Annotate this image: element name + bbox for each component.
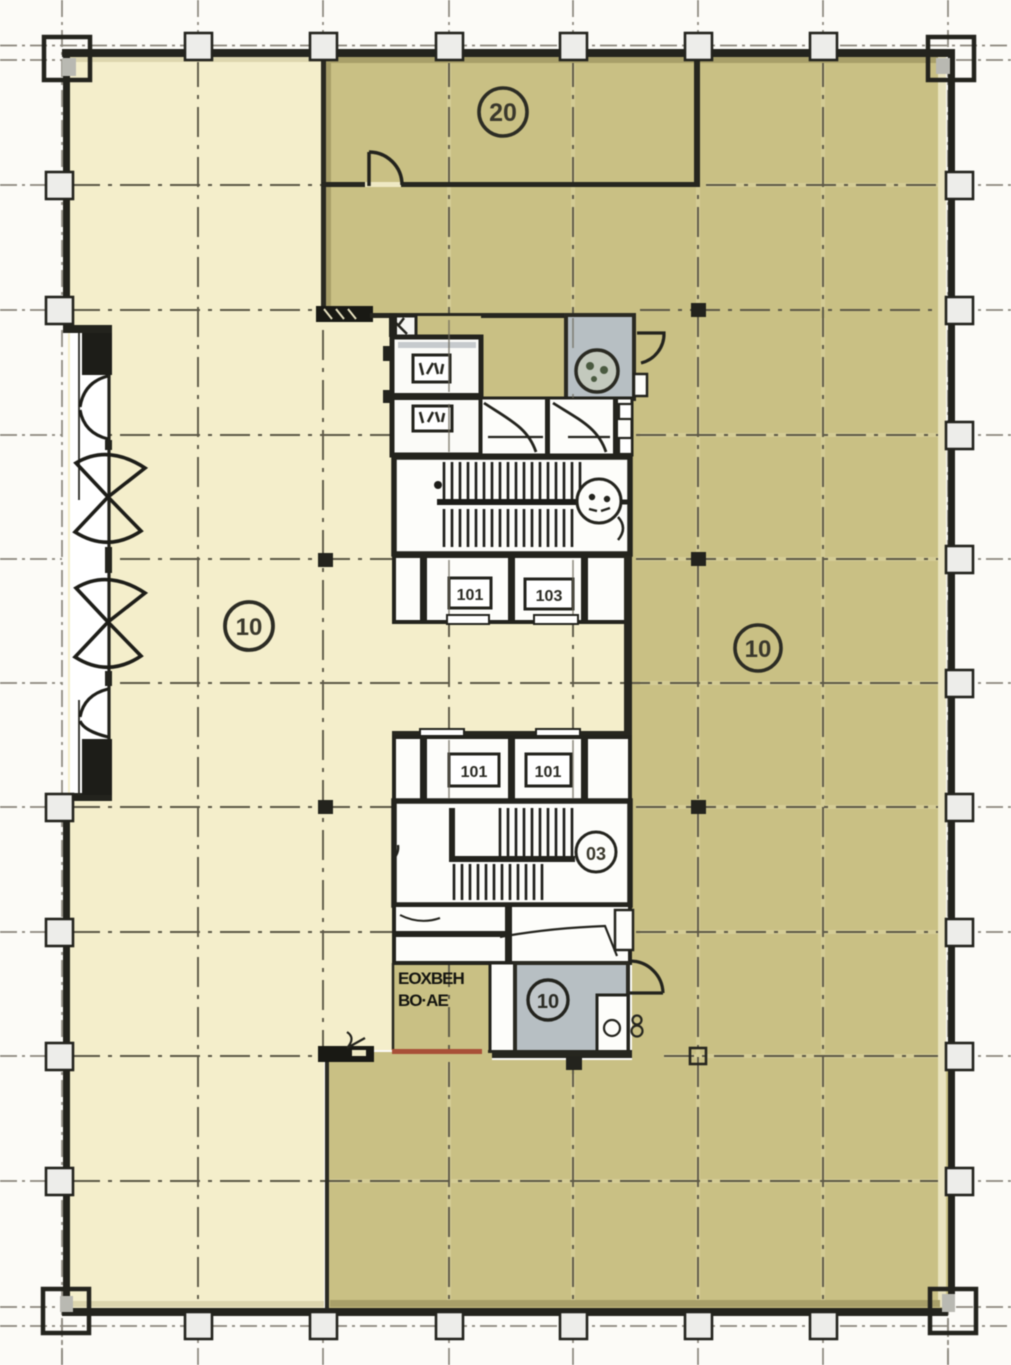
svg-text:101: 101 — [457, 587, 484, 604]
svg-text:10: 10 — [236, 614, 263, 641]
svg-text:20: 20 — [489, 99, 517, 127]
svg-text:101: 101 — [461, 764, 488, 781]
svg-text:EOXBEH: EOXBEH — [398, 969, 465, 988]
svg-text:03: 03 — [586, 844, 606, 864]
svg-text:BO·AE: BO·AE — [398, 991, 448, 1010]
svg-text:101: 101 — [535, 764, 562, 781]
svg-text:10: 10 — [745, 636, 772, 663]
svg-text:10: 10 — [537, 991, 559, 1013]
svg-text:103: 103 — [536, 588, 563, 605]
